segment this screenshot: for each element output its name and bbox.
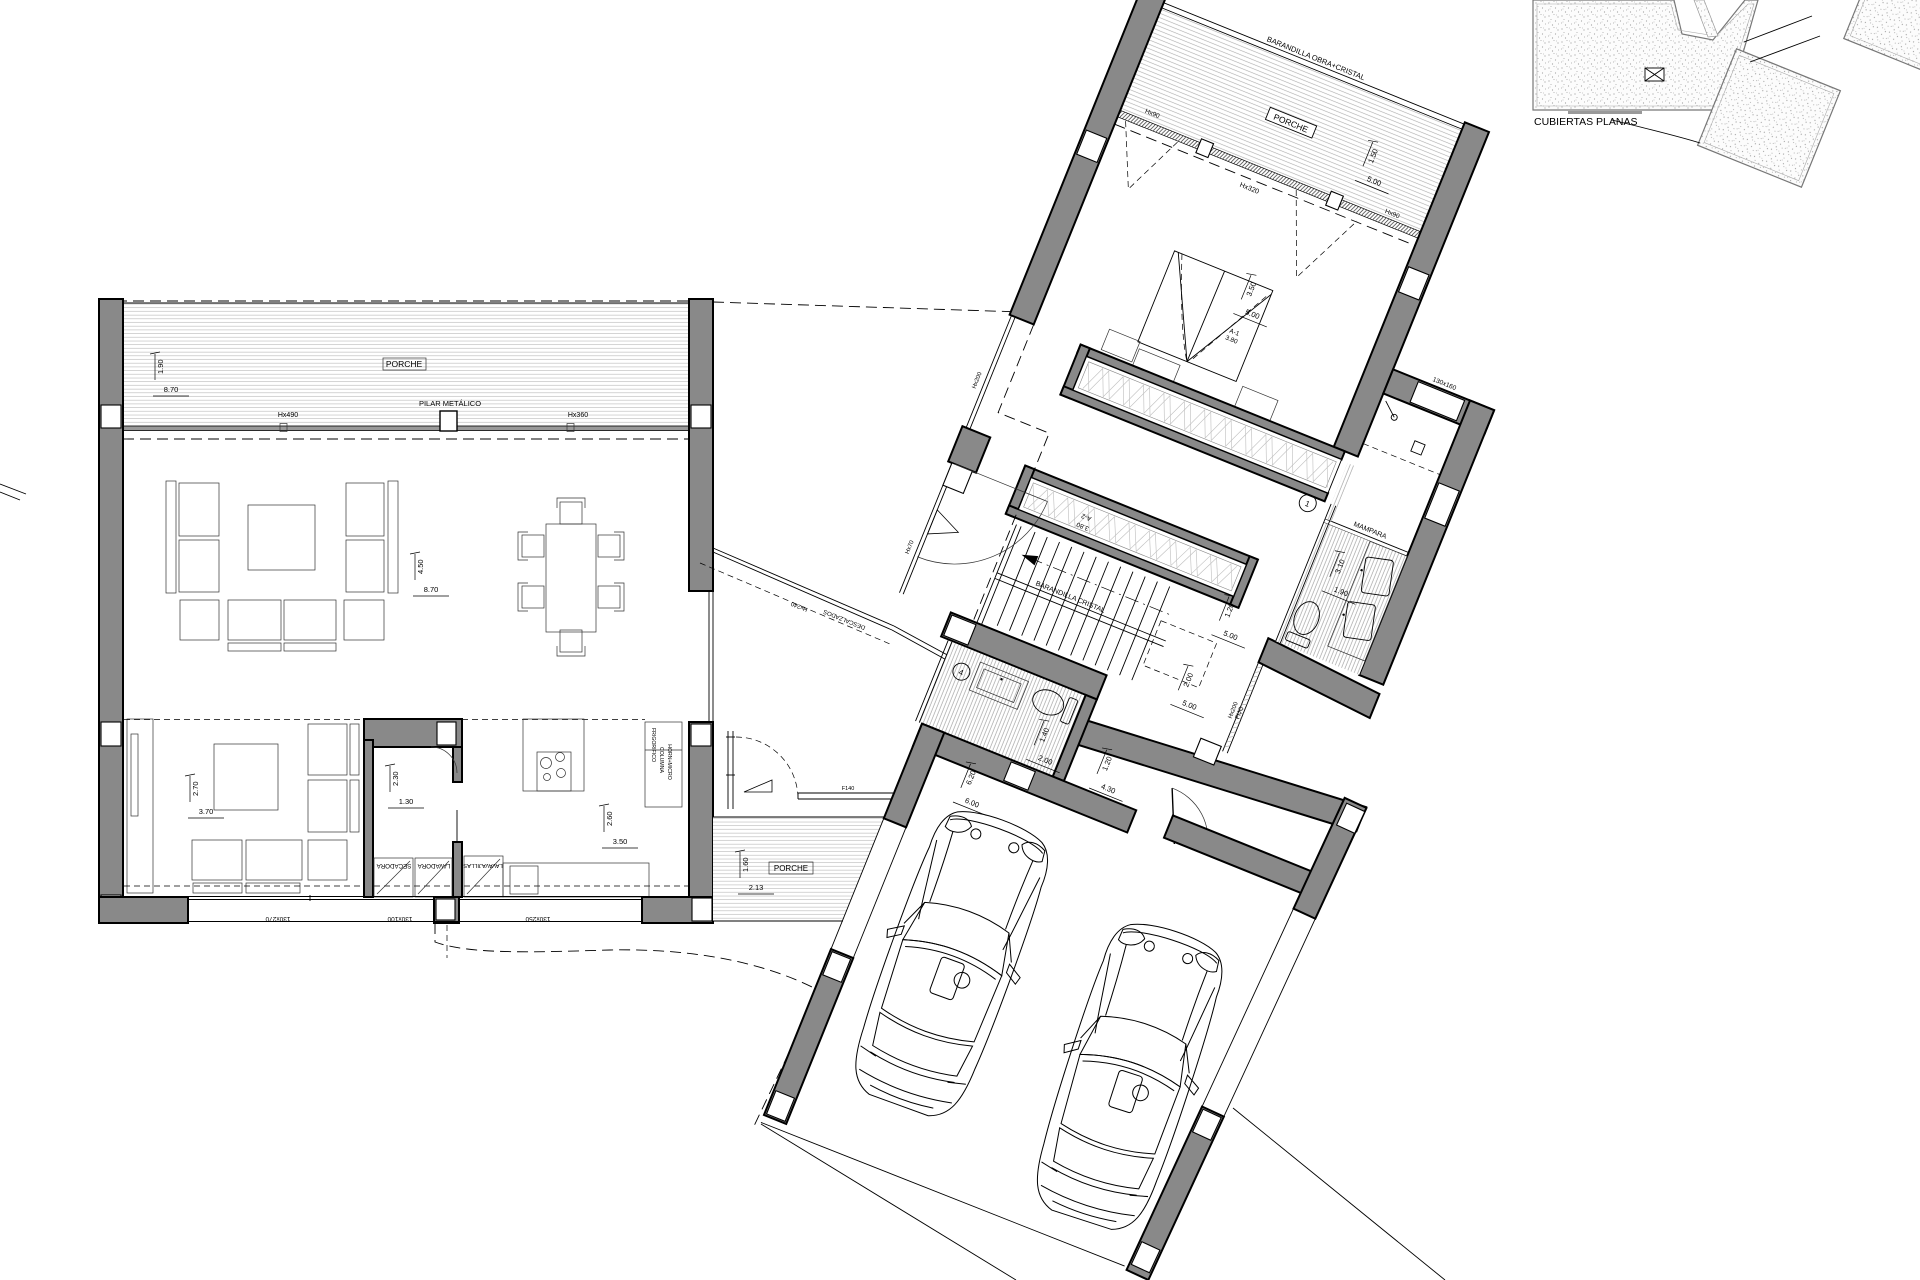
svg-text:1.30: 1.30 [399, 797, 414, 806]
svg-text:130x250: 130x250 [525, 915, 550, 922]
svg-text:3.70: 3.70 [199, 807, 214, 816]
svg-text:2.30: 2.30 [391, 771, 400, 786]
svg-text:PORCHE: PORCHE [386, 359, 423, 369]
svg-text:PILAR METÁLICO: PILAR METÁLICO [419, 399, 481, 408]
svg-text:Hx360: Hx360 [568, 412, 588, 419]
svg-text:1.90: 1.90 [156, 359, 165, 374]
svg-text:PORCHE: PORCHE [774, 864, 808, 873]
svg-text:2.13: 2.13 [749, 883, 764, 892]
svg-text:1.60: 1.60 [741, 857, 750, 872]
svg-text:130x100: 130x100 [387, 915, 412, 922]
svg-text:LAVADORA: LAVADORA [417, 862, 451, 869]
svg-text:F140: F140 [842, 786, 855, 792]
svg-text:2.70: 2.70 [191, 781, 200, 796]
svg-text:SECADORA: SECADORA [376, 862, 412, 869]
svg-text:FRIGORIFICO: FRIGORIFICO [650, 728, 656, 762]
svg-text:COLUMNA: COLUMNA [658, 747, 664, 773]
svg-text:8.70: 8.70 [164, 385, 179, 394]
svg-text:4.50: 4.50 [416, 559, 425, 574]
svg-text:LAVAVAJILLAS: LAVAVAJILLAS [463, 862, 503, 868]
svg-text:130x270: 130x270 [265, 915, 290, 922]
svg-text:Hx490: Hx490 [278, 412, 298, 419]
svg-text:8.70: 8.70 [424, 585, 439, 594]
svg-text:3.50: 3.50 [613, 837, 628, 846]
svg-text:CUBIERTAS PLANAS: CUBIERTAS PLANAS [1534, 116, 1637, 128]
svg-text:2.60: 2.60 [605, 811, 614, 826]
svg-text:HORN+MICRO: HORN+MICRO [666, 744, 672, 780]
